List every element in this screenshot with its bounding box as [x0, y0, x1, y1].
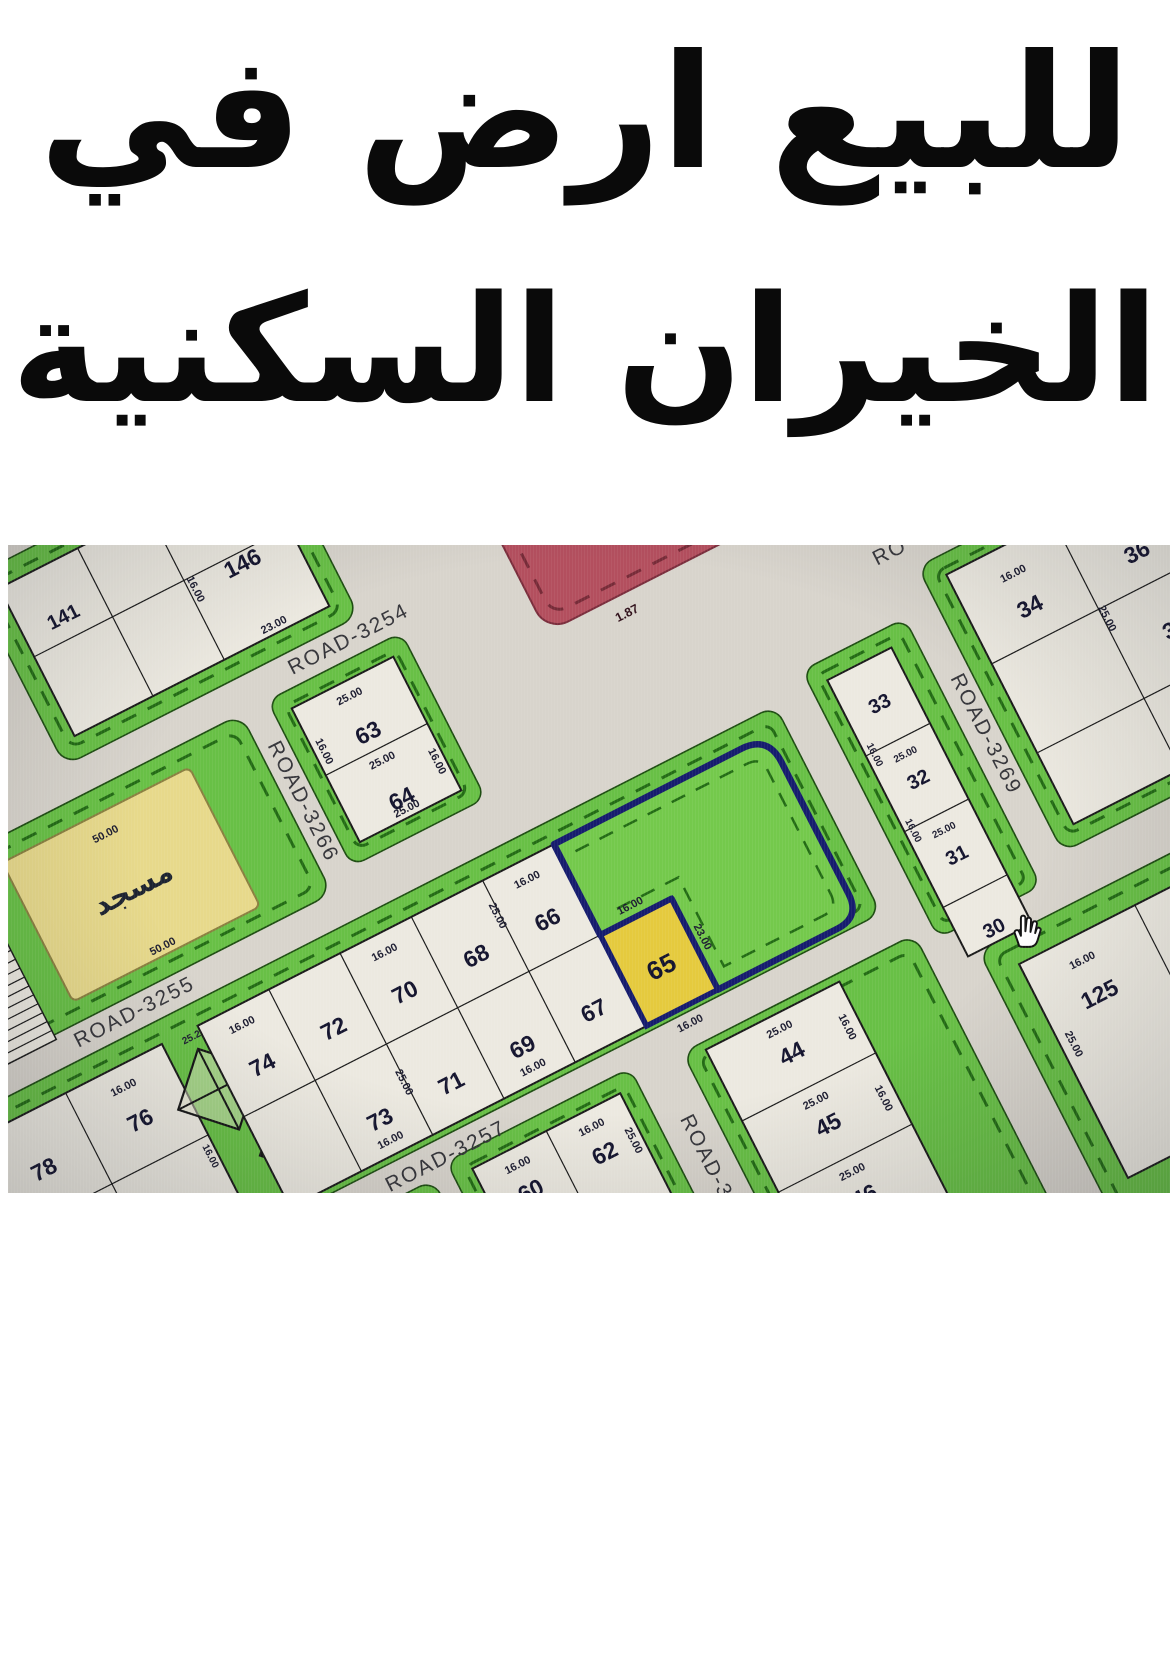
- map-viewport[interactable]: 141 146 23.00 23.00 16.00 مسجد 50.00 50.…: [8, 545, 1170, 1193]
- headline-line2: الخيران السكنية: [0, 250, 1170, 450]
- headline-line1: للبيع ارض في: [0, 4, 1170, 222]
- headline: للبيع ارض في الخيران السكنية: [0, 0, 1170, 545]
- red-block-area: 1.87: [613, 601, 641, 625]
- road-label-partial: RO: [869, 545, 911, 570]
- advert-page: للبيع ارض في الخيران السكنية: [0, 0, 1170, 1666]
- plot-map: 141 146 23.00 23.00 16.00 مسجد 50.00 50.…: [8, 545, 1170, 1193]
